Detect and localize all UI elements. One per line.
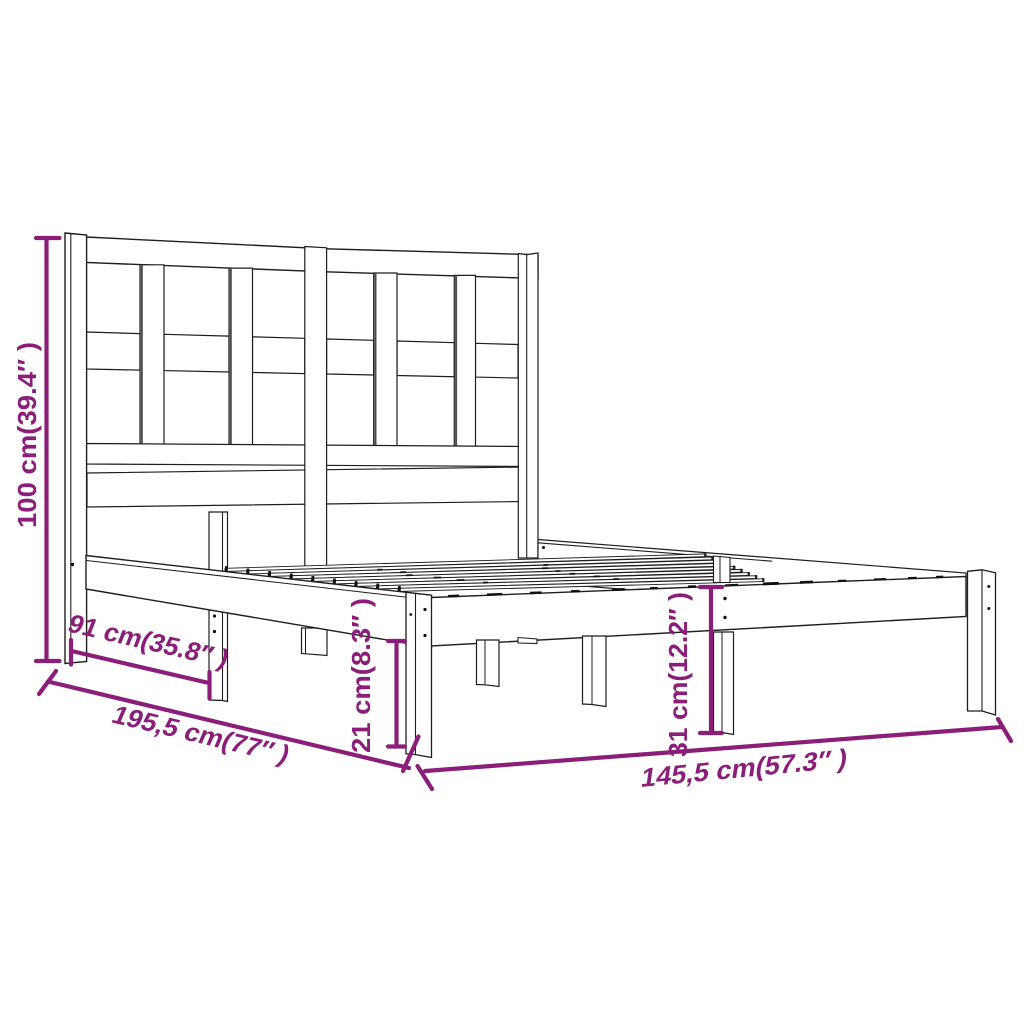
svg-text:100 cm(39.4″ ): 100 cm(39.4″ ) xyxy=(12,342,42,528)
svg-text:21 cm(8.3″ ): 21 cm(8.3″ ) xyxy=(346,598,376,753)
svg-text:31 cm(12.2″ ): 31 cm(12.2″ ) xyxy=(663,592,693,757)
svg-text:91 cm(35.8″ ): 91 cm(35.8″ ) xyxy=(64,608,234,673)
svg-text:195,5 cm(77″ ): 195,5 cm(77″ ) xyxy=(108,700,295,769)
